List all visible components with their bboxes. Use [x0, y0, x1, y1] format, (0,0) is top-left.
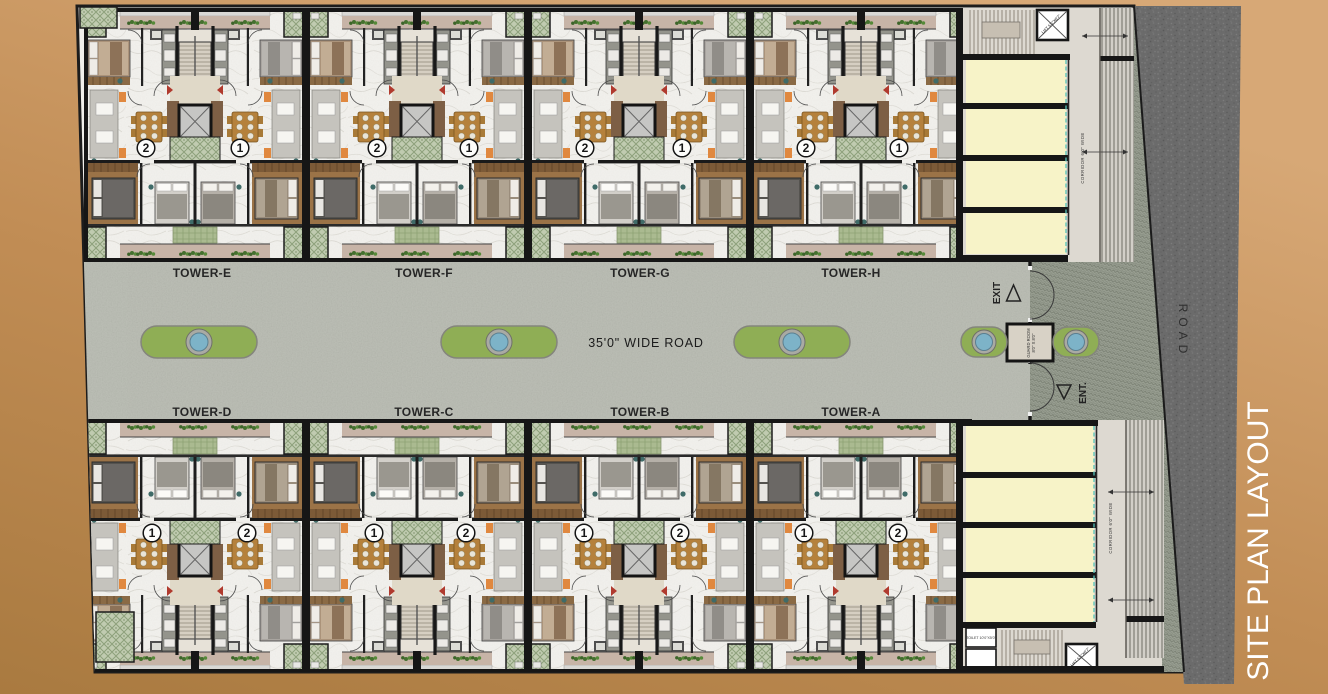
svg-text:8'0" X 8'0": 8'0" X 8'0" [1031, 333, 1036, 353]
svg-text:EXIT: EXIT [992, 282, 1003, 304]
svg-text:1: 1 [679, 141, 686, 155]
svg-text:2: 2 [803, 141, 810, 155]
svg-text:TOWER-A: TOWER-A [821, 405, 880, 419]
svg-text:ROAD: ROAD [1176, 304, 1190, 359]
svg-text:1: 1 [237, 141, 244, 155]
svg-text:2: 2 [582, 141, 589, 155]
svg-text:SITE PLAN LAYOUT: SITE PLAN LAYOUT [1242, 401, 1275, 681]
svg-text:2: 2 [895, 526, 902, 540]
svg-text:2: 2 [677, 526, 684, 540]
svg-text:2: 2 [244, 526, 251, 540]
svg-text:TOWER-E: TOWER-E [173, 266, 232, 280]
svg-text:2: 2 [143, 141, 150, 155]
svg-text:TOWER-D: TOWER-D [172, 405, 231, 419]
svg-text:TOILET 10'0"X5'0": TOILET 10'0"X5'0" [966, 636, 996, 640]
svg-text:1: 1 [466, 141, 473, 155]
svg-text:TOWER-H: TOWER-H [821, 266, 880, 280]
svg-text:2: 2 [374, 141, 381, 155]
svg-text:1: 1 [801, 526, 808, 540]
svg-text:TOWER-B: TOWER-B [610, 405, 669, 419]
svg-text:CORRIDOR 6'0" WIDE: CORRIDOR 6'0" WIDE [1108, 502, 1113, 553]
svg-text:2: 2 [463, 526, 470, 540]
svg-text:TOWER-C: TOWER-C [394, 405, 453, 419]
svg-text:1: 1 [896, 141, 903, 155]
svg-text:CORRIDOR 6'0" WIDE: CORRIDOR 6'0" WIDE [1080, 132, 1085, 183]
svg-text:TOWER-G: TOWER-G [610, 266, 670, 280]
svg-text:35'0" WIDE ROAD: 35'0" WIDE ROAD [588, 336, 703, 350]
svg-text:1: 1 [371, 526, 378, 540]
svg-text:1: 1 [581, 526, 588, 540]
svg-text:TOWER-F: TOWER-F [395, 266, 453, 280]
svg-text:ENT.: ENT. [1078, 382, 1089, 404]
svg-text:1: 1 [149, 526, 156, 540]
